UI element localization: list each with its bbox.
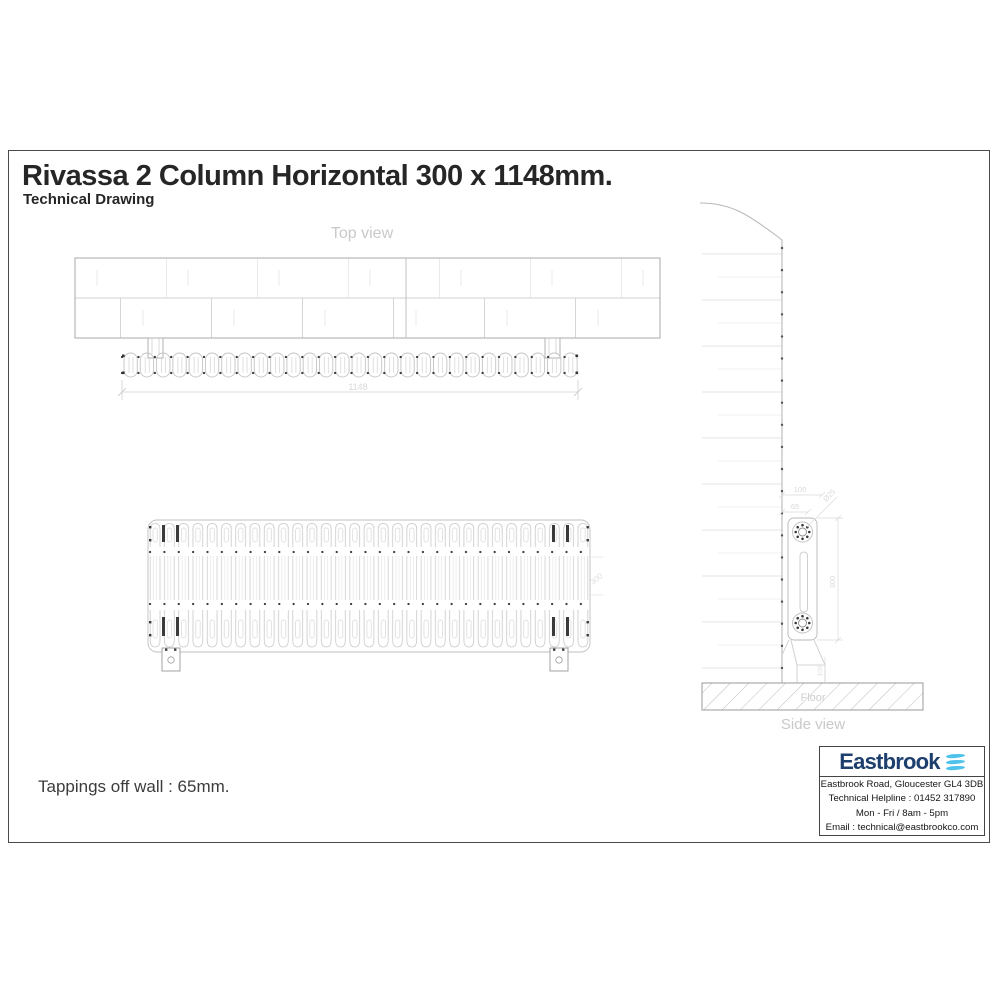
front-height-dimension-label: 300	[588, 571, 604, 587]
info-address: Eastbrook Road, Gloucester GL4 3DB	[820, 777, 984, 791]
radiator-side-section	[782, 518, 825, 683]
info-email: Email : technical@eastbrookco.com	[820, 820, 984, 834]
dim-foot-height-label: 100	[817, 665, 824, 676]
brand-name: Eastbrook	[839, 750, 939, 774]
front-view-drawing: 300	[130, 495, 650, 695]
dim-tapping-offset-label: 65	[791, 502, 799, 511]
info-hours: Mon - Fri / 8am - 5pm	[820, 806, 984, 820]
dim-height-label: 300	[828, 576, 837, 589]
wall-top-view	[75, 258, 660, 338]
top-view-drawing: Top view 1148	[60, 222, 700, 412]
floor: Floor	[702, 683, 923, 710]
foot-left	[162, 648, 180, 671]
tappings-note: Tappings off wall : 65mm.	[38, 777, 230, 797]
technical-drawing-page: Rivassa 2 Column Horizontal 300 x 1148mm…	[0, 0, 1000, 1000]
dim-tapping-size-label: Ø25	[821, 487, 837, 503]
front-height-dimension: 300	[588, 557, 604, 595]
radiator-top-view	[122, 352, 578, 378]
info-helpline: Technical Helpline : 01452 317890	[820, 791, 984, 805]
wall-side-view	[700, 203, 782, 683]
side-view-label: Side view	[781, 716, 845, 733]
page-title: Rivassa 2 Column Horizontal 300 x 1148mm…	[22, 160, 612, 193]
top-view-label: Top view	[331, 225, 394, 242]
eastbrook-info-box: Eastbrook Eastbrook Road, Gloucester GL4…	[819, 746, 985, 836]
floor-label: Floor	[800, 692, 825, 704]
eastbrook-waves-icon	[946, 754, 965, 771]
foot-right	[550, 648, 568, 671]
dim-wall-offset-label: 100	[794, 485, 807, 494]
side-view-drawing: Floor Side view 100 65 Ø25 300 100	[685, 195, 995, 740]
radiator-front-view	[148, 520, 590, 671]
page-subtitle: Technical Drawing	[23, 191, 154, 208]
brand-row: Eastbrook	[820, 747, 984, 777]
width-dimension-label: 1148	[348, 382, 367, 392]
